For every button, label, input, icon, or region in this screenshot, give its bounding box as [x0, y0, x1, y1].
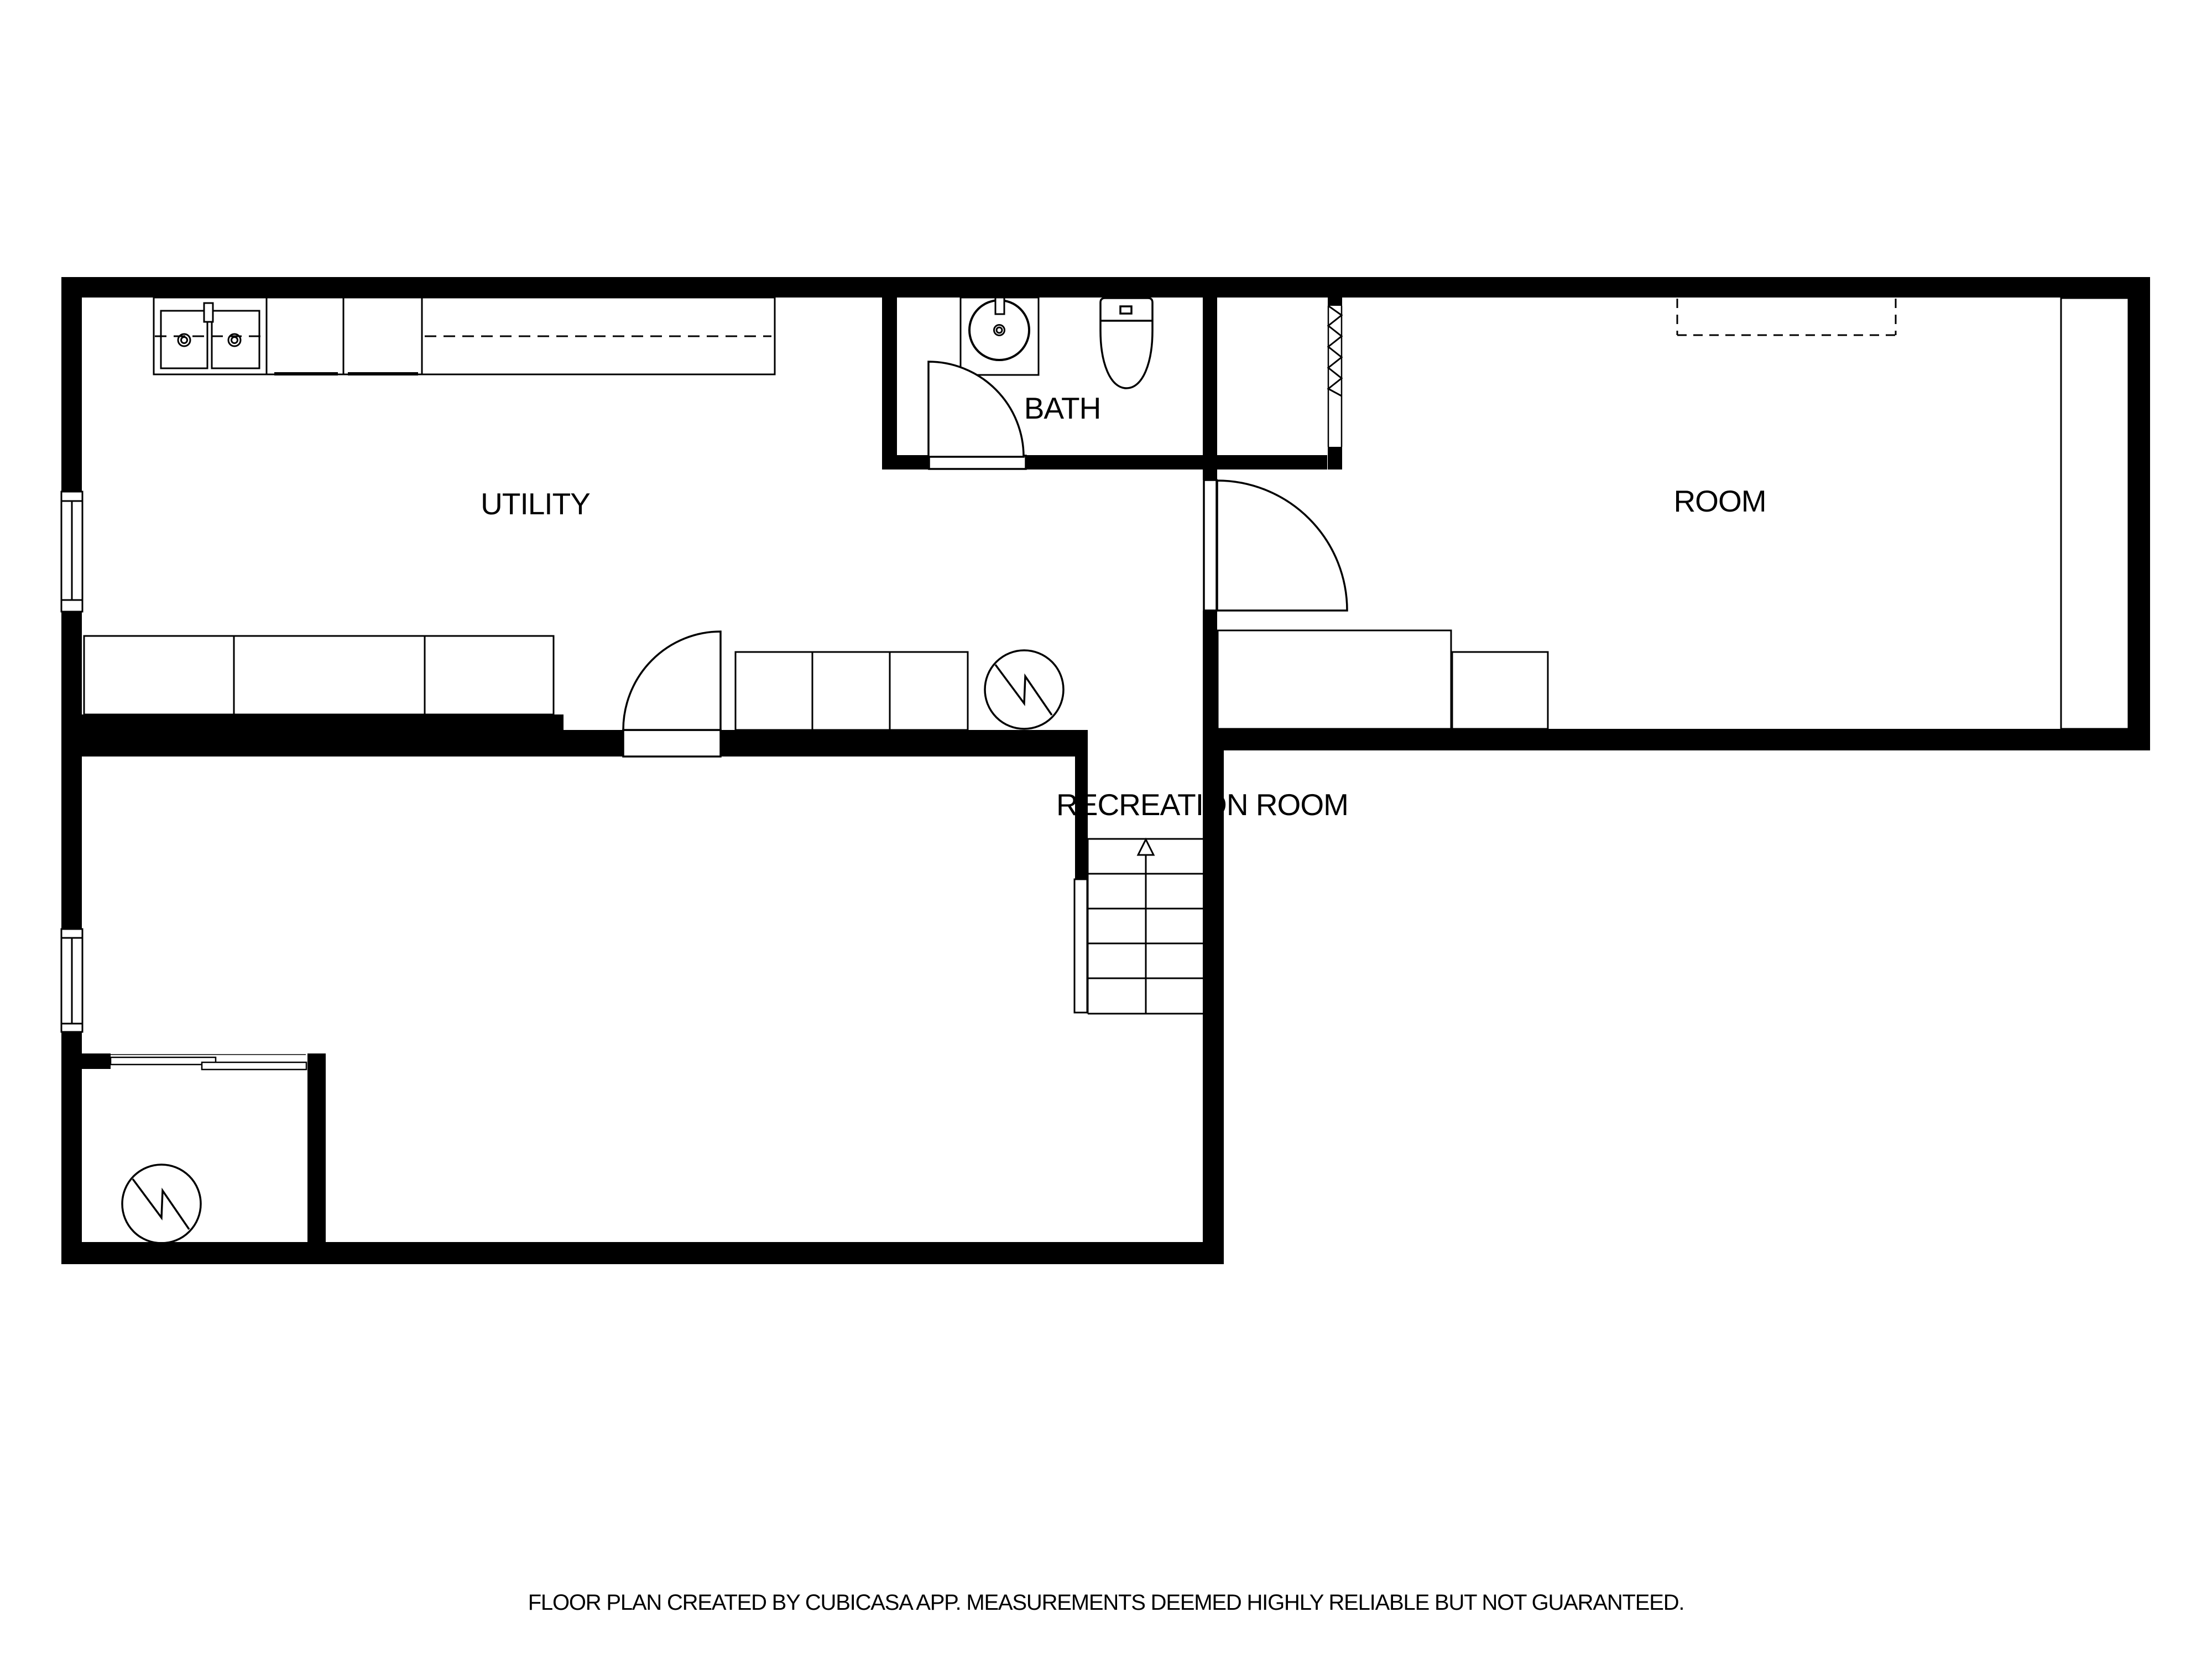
svg-text:RECREATION ROOM: RECREATION ROOM [1056, 787, 1348, 822]
svg-text:FLOOR PLAN CREATED BY CUBICASA: FLOOR PLAN CREATED BY CUBICASA APP. MEAS… [528, 1590, 1684, 1615]
svg-text:ROOM: ROOM [1673, 484, 1766, 518]
svg-text:BATH: BATH [1024, 391, 1101, 425]
svg-text:UTILITY: UTILITY [481, 487, 590, 521]
